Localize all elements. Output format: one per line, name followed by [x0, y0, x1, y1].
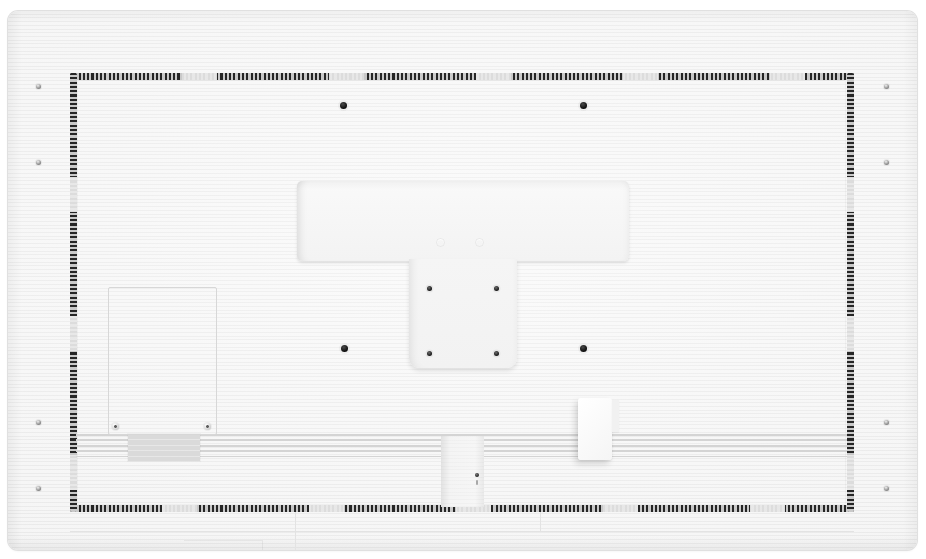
- bottom-seam: [70, 531, 854, 532]
- power-cover-step: [612, 400, 619, 432]
- vesa-hole-large: [580, 345, 587, 352]
- channel-screw: [475, 473, 479, 477]
- edge-screw: [884, 160, 889, 165]
- edge-screw: [884, 486, 889, 491]
- channel-slot: [476, 480, 478, 485]
- bottom-seam-step: [184, 540, 263, 550]
- edge-screw: [36, 84, 41, 89]
- vent-strip-right: [847, 73, 854, 512]
- vesa-hole-large: [341, 345, 348, 352]
- power-switch-cover: [578, 398, 612, 460]
- vesa-hole-large: [580, 102, 587, 109]
- vesa-hole-small: [427, 351, 432, 356]
- emboss-mark: [436, 238, 445, 247]
- edge-screw: [36, 420, 41, 425]
- mount-recess-column: [409, 259, 517, 368]
- emboss-mark: [475, 238, 484, 247]
- bottom-seam-vertical: [295, 512, 296, 550]
- vesa-hole-small: [494, 286, 499, 291]
- vesa-hole-small: [427, 286, 432, 291]
- edge-screw: [36, 160, 41, 165]
- vesa-hole-large: [340, 102, 347, 109]
- edge-screw: [884, 420, 889, 425]
- edge-screw: [884, 84, 889, 89]
- mount-recess-bar: [297, 181, 629, 261]
- vent-strip-top: [70, 73, 854, 80]
- cable-channel: [441, 436, 484, 507]
- edge-screw: [36, 486, 41, 491]
- service-panel: [108, 287, 217, 435]
- service-panel-screw: [112, 423, 119, 430]
- product-photo-canvas: { "scene": { "type": "product-photograph…: [0, 0, 926, 559]
- bottom-seam-vertical: [540, 512, 541, 532]
- rating-label: [128, 434, 200, 461]
- display-back-panel: [8, 11, 917, 550]
- vesa-hole-small: [494, 351, 499, 356]
- service-panel-screw: [204, 423, 211, 430]
